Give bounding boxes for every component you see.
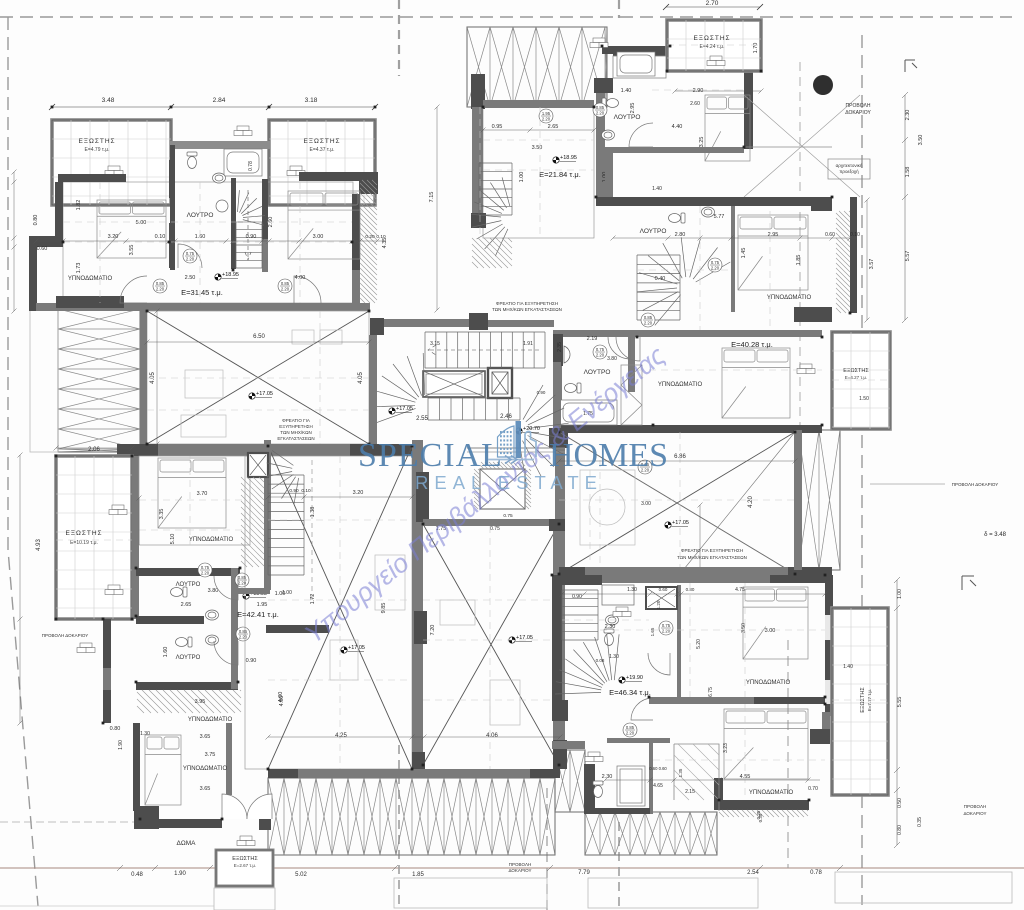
svg-text:0.80: 0.80 xyxy=(897,825,903,835)
svg-text:4.93: 4.93 xyxy=(36,539,42,551)
svg-text:0.85: 0.85 xyxy=(281,281,290,286)
svg-text:ΕΓΚΑΤΑΣΤΑΣΕΩΝ: ΕΓΚΑΤΑΣΤΑΣΕΩΝ xyxy=(277,436,314,441)
svg-text:Ε=10.19 τ.μ.: Ε=10.19 τ.μ. xyxy=(70,540,98,546)
svg-text:1.95: 1.95 xyxy=(257,602,268,608)
svg-text:3.20: 3.20 xyxy=(108,234,119,240)
svg-text:4.40: 4.40 xyxy=(672,124,683,130)
svg-text:ΠΡΟΒΟΛΗ ΔΟΚΑΡΙΟΥ: ΠΡΟΒΟΛΗ ΔΟΚΑΡΙΟΥ xyxy=(42,633,88,638)
svg-text:0.85: 0.85 xyxy=(644,315,653,320)
svg-text:0.85: 0.85 xyxy=(626,725,635,730)
svg-text:5.10: 5.10 xyxy=(170,534,176,545)
svg-text:2.15: 2.15 xyxy=(685,789,695,795)
svg-text:ΥΠΝΟΔΩΜΑΤΙΟ: ΥΠΝΟΔΩΜΑΤΙΟ xyxy=(767,295,812,301)
svg-text:Ε=4.27 τ.μ.: Ε=4.27 τ.μ. xyxy=(845,375,868,380)
svg-text:0.90: 0.90 xyxy=(246,234,257,240)
svg-text:2.20: 2.20 xyxy=(644,321,653,326)
svg-text:+17.05: +17.05 xyxy=(396,406,413,412)
svg-text:1.82: 1.82 xyxy=(76,200,82,211)
svg-text:0.80: 0.80 xyxy=(33,215,39,226)
svg-text:6.86: 6.86 xyxy=(674,454,686,460)
svg-text:2.20: 2.20 xyxy=(156,287,165,292)
svg-text:ΕΞΥΠΗΡΕΤΗΣΗ: ΕΞΥΠΗΡΕΤΗΣΗ xyxy=(279,424,312,429)
svg-text:1.91: 1.91 xyxy=(523,341,533,347)
svg-text:3.23: 3.23 xyxy=(723,743,729,753)
svg-text:ΛΟΥΤΡΟ: ΛΟΥΤΡΟ xyxy=(176,582,201,588)
svg-text:ΠΡΟΒΟΛΗ: ΠΡΟΒΟΛΗ xyxy=(846,103,871,109)
svg-text:ΦΡΕΑΤΙΟ ΓΙΑ ΕΞΥΠΗΡΕΤΗΣΗ: ΦΡΕΑΤΙΟ ΓΙΑ ΕΞΥΠΗΡΕΤΗΣΗ xyxy=(681,548,743,553)
svg-text:5.20: 5.20 xyxy=(696,639,702,649)
svg-text:0.10: 0.10 xyxy=(850,232,860,238)
svg-text:5.55: 5.55 xyxy=(897,697,903,708)
svg-text:1.40: 1.40 xyxy=(621,88,632,94)
svg-text:3.65: 3.65 xyxy=(200,786,211,792)
svg-text:4.75: 4.75 xyxy=(735,587,745,593)
svg-text:3.50: 3.50 xyxy=(918,135,924,146)
svg-text:ΥΠΝΟΔΩΜΑΤΙΟ: ΥΠΝΟΔΩΜΑΤΙΟ xyxy=(658,382,703,388)
svg-text:3.70: 3.70 xyxy=(197,491,208,497)
svg-text:0.75: 0.75 xyxy=(201,565,210,570)
svg-text:1.90: 1.90 xyxy=(118,740,124,750)
svg-text:0.85: 0.85 xyxy=(156,281,165,286)
svg-text:3.57: 3.57 xyxy=(869,259,875,270)
svg-text:0.48: 0.48 xyxy=(131,872,143,878)
svg-text:2.30: 2.30 xyxy=(605,624,616,630)
svg-text:0.08: 0.08 xyxy=(596,658,605,663)
svg-text:6.50: 6.50 xyxy=(253,334,265,340)
svg-text:ΥΠΝΟΔΩΜΑΤΙΟ: ΥΠΝΟΔΩΜΑΤΙΟ xyxy=(746,680,791,686)
svg-text:ΔΩΜΑ: ΔΩΜΑ xyxy=(177,840,197,847)
svg-text:0.90: 0.90 xyxy=(246,658,257,664)
svg-text:2.20: 2.20 xyxy=(596,111,605,116)
svg-text:2.80: 2.80 xyxy=(675,232,686,238)
svg-text:1.20: 1.20 xyxy=(656,600,661,609)
svg-text:2.95: 2.95 xyxy=(768,232,779,238)
svg-text:Ε=21.84 τ.μ.: Ε=21.84 τ.μ. xyxy=(539,170,581,179)
svg-text:ΔΟΚΑΡΙΟΥ: ΔΟΚΑΡΙΟΥ xyxy=(845,110,871,116)
svg-text:1.65: 1.65 xyxy=(650,627,655,636)
svg-text:3.00: 3.00 xyxy=(313,234,324,240)
svg-text:+18.95: +18.95 xyxy=(560,155,577,161)
svg-text:1.40: 1.40 xyxy=(652,186,662,192)
svg-text:5.00: 5.00 xyxy=(136,220,147,226)
svg-text:1.30: 1.30 xyxy=(140,731,150,737)
svg-text:+17.05: +17.05 xyxy=(256,391,273,397)
svg-text:ΕΞΩΣΤΗΣ: ΕΞΩΣΤΗΣ xyxy=(65,530,102,537)
svg-text:+19.90: +19.90 xyxy=(626,675,643,681)
svg-text:Ε=31.45 τ.μ.: Ε=31.45 τ.μ. xyxy=(181,288,223,297)
svg-text:3.75: 3.75 xyxy=(205,752,216,758)
svg-text:ΠΡΟΒΟΛΗ: ΠΡΟΒΟΛΗ xyxy=(964,804,986,809)
svg-text:4.05: 4.05 xyxy=(150,372,156,384)
svg-text:2.65: 2.65 xyxy=(181,602,192,608)
svg-text:0.90: 0.90 xyxy=(572,594,582,600)
svg-text:3.15: 3.15 xyxy=(430,341,440,347)
svg-text:+18.95: +18.95 xyxy=(222,272,239,278)
svg-text:0.60: 0.60 xyxy=(37,246,48,252)
svg-text:Ε=4.37 τ.μ.: Ε=4.37 τ.μ. xyxy=(309,147,334,153)
svg-text:2.30: 2.30 xyxy=(602,774,613,780)
svg-text:HOMES: HOMES xyxy=(549,437,668,474)
svg-text:0.70: 0.70 xyxy=(808,786,818,792)
svg-text:2.35: 2.35 xyxy=(557,342,563,352)
svg-text:ΔΟΚΑΡΙΟΥ: ΔΟΚΑΡΙΟΥ xyxy=(508,868,531,873)
svg-text:2.70: 2.70 xyxy=(706,0,719,7)
svg-text:5.02: 5.02 xyxy=(295,872,307,878)
svg-text:0.35: 0.35 xyxy=(758,813,763,822)
svg-text:0.95: 0.95 xyxy=(492,124,503,130)
svg-text:ΕΞΩΣΤΗΣ: ΕΞΩΣΤΗΣ xyxy=(843,368,869,374)
svg-text:ΦΡΕΑΤΙΟ ΓΙΑ: ΦΡΕΑΤΙΟ ΓΙΑ xyxy=(282,418,310,423)
svg-text:3.50: 3.50 xyxy=(741,623,747,633)
svg-text:1.50: 1.50 xyxy=(859,396,869,402)
svg-text:ΕΞΩΣΤΗΣ: ΕΞΩΣΤΗΣ xyxy=(303,138,340,145)
svg-text:0.40: 0.40 xyxy=(655,276,666,282)
svg-text:ΥΠΝΟΔΩΜΑΤΙΟ: ΥΠΝΟΔΩΜΑΤΙΟ xyxy=(68,276,113,282)
svg-text:0.75: 0.75 xyxy=(596,347,605,352)
svg-text:ΛΟΥΤΡΟ: ΛΟΥΤΡΟ xyxy=(187,212,214,219)
svg-text:Ε=42.41 τ.μ.: Ε=42.41 τ.μ. xyxy=(237,610,279,619)
svg-text:1.00: 1.00 xyxy=(519,172,525,183)
svg-text:ΥΠΝΟΔΩΜΑΤΙΟ: ΥΠΝΟΔΩΜΑΤΙΟ xyxy=(183,766,228,772)
svg-text:3.35: 3.35 xyxy=(159,509,165,520)
svg-text:0.90: 0.90 xyxy=(289,488,299,494)
svg-text:0.10: 0.10 xyxy=(376,234,386,240)
svg-text:1.72: 1.72 xyxy=(310,594,316,605)
svg-text:1.30: 1.30 xyxy=(609,654,619,660)
svg-text:0.35: 0.35 xyxy=(917,817,923,827)
svg-text:4.00: 4.00 xyxy=(278,692,284,703)
svg-text:2.20: 2.20 xyxy=(281,287,290,292)
svg-text:3.50: 3.50 xyxy=(532,145,543,151)
svg-text:Ε=2.67 τ.μ.: Ε=2.67 τ.μ. xyxy=(234,863,257,868)
svg-text:1.73: 1.73 xyxy=(76,263,82,274)
svg-text:4.65: 4.65 xyxy=(653,783,663,789)
svg-text:REAL ESTATE: REAL ESTATE xyxy=(415,472,603,493)
svg-text:0.75: 0.75 xyxy=(711,260,720,265)
svg-text:2.55: 2.55 xyxy=(416,416,428,422)
svg-text:1.38: 1.38 xyxy=(310,507,316,518)
svg-text:ΠΡΟΒΟΛΗ: ΠΡΟΒΟΛΗ xyxy=(509,862,531,867)
svg-text:2.54: 2.54 xyxy=(747,870,759,876)
svg-text:2.60: 2.60 xyxy=(690,101,700,107)
svg-text:0.90: 0.90 xyxy=(537,390,546,395)
svg-text:0.10: 0.10 xyxy=(155,234,166,240)
svg-text:0.85: 0.85 xyxy=(238,575,247,580)
svg-text:ΛΟΥΤΡΟ: ΛΟΥΤΡΟ xyxy=(584,369,611,376)
svg-text:ΥΠΝΟΔΩΜΑΤΙΟ: ΥΠΝΟΔΩΜΑΤΙΟ xyxy=(749,790,794,796)
svg-text:3.25: 3.25 xyxy=(699,137,705,148)
svg-text:αρχιτεκτονική: αρχιτεκτονική xyxy=(836,162,863,168)
svg-text:ΕΞΩΣΤΗΣ: ΕΞΩΣΤΗΣ xyxy=(860,687,866,713)
svg-text:2.20: 2.20 xyxy=(239,635,248,640)
svg-text:3.20: 3.20 xyxy=(353,490,364,496)
svg-text:Ε=4.79 τ.μ.: Ε=4.79 τ.μ. xyxy=(84,147,109,153)
svg-text:0.50: 0.50 xyxy=(897,798,903,808)
svg-text:0.75: 0.75 xyxy=(662,623,671,628)
svg-text:1.00: 1.00 xyxy=(282,590,292,596)
svg-text:1.90: 1.90 xyxy=(174,871,186,877)
svg-text:2.30: 2.30 xyxy=(905,110,911,121)
svg-text:Ε=46.34 τ.μ.: Ε=46.34 τ.μ. xyxy=(609,688,651,697)
svg-text:+20.70: +20.70 xyxy=(523,426,540,432)
svg-text:3.00: 3.00 xyxy=(765,628,776,634)
svg-text:5.77: 5.77 xyxy=(714,214,725,220)
svg-text:Ε=40.28 τ.μ.: Ε=40.28 τ.μ. xyxy=(731,340,773,349)
svg-text:5.57: 5.57 xyxy=(905,251,911,262)
svg-text:ΥΠΝΟΔΩΜΑΤΙΟ: ΥΠΝΟΔΩΜΑΤΙΟ xyxy=(189,537,234,543)
svg-text:2.95: 2.95 xyxy=(630,103,636,114)
svg-text:προεξοχή: προεξοχή xyxy=(839,168,859,174)
svg-text:0.75: 0.75 xyxy=(490,526,500,532)
svg-text:1.35: 1.35 xyxy=(678,768,683,777)
svg-text:3.95: 3.95 xyxy=(195,699,206,705)
svg-text:ΕΞΩΣΤΗΣ: ΕΞΩΣΤΗΣ xyxy=(78,138,115,145)
svg-text:3.55: 3.55 xyxy=(129,245,135,256)
svg-text:1.70: 1.70 xyxy=(753,43,759,54)
svg-text:3.65: 3.65 xyxy=(200,734,211,740)
svg-text:2.46: 2.46 xyxy=(500,414,512,420)
svg-text:ΕΞΩΣΤΗΣ: ΕΞΩΣΤΗΣ xyxy=(693,35,730,42)
svg-text:3.00: 3.00 xyxy=(641,501,651,507)
svg-text:δ = 3.48: δ = 3.48 xyxy=(984,532,1007,538)
svg-text:7.15: 7.15 xyxy=(429,192,435,203)
svg-text:1.95: 1.95 xyxy=(542,111,551,116)
svg-text:1.45: 1.45 xyxy=(741,248,747,259)
svg-text:ΠΡΟΒΟΛΗ ΔΟΚΑΡΙΟΥ: ΠΡΟΒΟΛΗ ΔΟΚΑΡΙΟΥ xyxy=(952,482,998,487)
svg-text:SPECIAL: SPECIAL xyxy=(358,437,503,474)
svg-text:3.80: 3.80 xyxy=(208,588,219,594)
svg-text:6.75: 6.75 xyxy=(708,687,714,697)
svg-text:4.05: 4.05 xyxy=(358,372,364,384)
svg-text:2.20: 2.20 xyxy=(238,581,247,586)
svg-text:0.80: 0.80 xyxy=(110,726,121,732)
svg-text:2.50: 2.50 xyxy=(185,275,196,281)
svg-text:0.10: 0.10 xyxy=(301,488,311,494)
svg-text:9.85: 9.85 xyxy=(381,603,387,614)
svg-text:+17.05: +17.05 xyxy=(672,520,689,526)
svg-text:3.48: 3.48 xyxy=(102,97,115,104)
svg-text:0.60: 0.60 xyxy=(825,232,835,238)
svg-text:2.20: 2.20 xyxy=(201,571,210,576)
svg-text:ΛΟΥΤΡΟ: ΛΟΥΤΡΟ xyxy=(614,114,641,121)
svg-text:0.85: 0.85 xyxy=(239,629,248,634)
svg-text:7.79: 7.79 xyxy=(578,870,590,876)
svg-text:ΤΩΝ ΜΗΧ/ΚΩΝ ΕΓΚΑΤΑΣΤΑΣΕΩΝ: ΤΩΝ ΜΗΧ/ΚΩΝ ΕΓΚΑΤΑΣΤΑΣΕΩΝ xyxy=(492,307,562,312)
svg-text:2.20: 2.20 xyxy=(542,117,551,122)
svg-text:0.60: 0.60 xyxy=(659,587,668,592)
svg-text:ΤΩΝ ΜΗΧ/ΚΩΝ: ΤΩΝ ΜΗΧ/ΚΩΝ xyxy=(280,430,311,435)
svg-text:1.00: 1.00 xyxy=(897,589,903,599)
svg-text:0.60 0.60: 0.60 0.60 xyxy=(649,766,667,771)
svg-text:2.65: 2.65 xyxy=(548,124,559,130)
svg-text:2.19: 2.19 xyxy=(587,336,598,342)
svg-text:2.20: 2.20 xyxy=(626,731,635,736)
svg-text:1.85: 1.85 xyxy=(796,255,802,266)
svg-text:2.84: 2.84 xyxy=(213,97,226,104)
svg-text:4.20: 4.20 xyxy=(748,496,754,508)
svg-text:0.78: 0.78 xyxy=(810,870,822,876)
svg-text:+17.05: +17.05 xyxy=(348,645,365,651)
svg-text:0.75: 0.75 xyxy=(503,513,513,519)
svg-text:0.75: 0.75 xyxy=(186,251,195,256)
svg-text:ΔΟΚΑΡΙΟΥ: ΔΟΚΑΡΙΟΥ xyxy=(963,811,986,816)
svg-text:ΛΟΥΤΡΟ: ΛΟΥΤΡΟ xyxy=(176,655,201,661)
svg-text:2.20: 2.20 xyxy=(186,257,195,262)
svg-text:4.25: 4.25 xyxy=(335,733,347,739)
svg-text:3.18: 3.18 xyxy=(305,97,318,104)
svg-text:ΤΩΝ ΜΗΧ/ΚΩΝ ΕΓΚΑΤΑΣΤΑΣΕΩΝ: ΤΩΝ ΜΗΧ/ΚΩΝ ΕΓΚΑΤΑΣΤΑΣΕΩΝ xyxy=(677,555,747,560)
svg-text:2.20: 2.20 xyxy=(662,629,671,634)
svg-text:7.20: 7.20 xyxy=(430,625,436,636)
svg-text:ΦΡΕΑΤΙΟ ΓΙΑ ΕΞΥΠΗΡΕΤΗΣΗ: ΦΡΕΑΤΙΟ ΓΙΑ ΕΞΥΠΗΡΕΤΗΣΗ xyxy=(496,301,558,306)
svg-text:ΛΟΥΤΡΟ: ΛΟΥΤΡΟ xyxy=(640,228,667,235)
svg-text:4.06: 4.06 xyxy=(486,733,498,739)
svg-text:1.85: 1.85 xyxy=(412,872,424,878)
svg-text:1.58: 1.58 xyxy=(905,167,911,178)
svg-text:0.85: 0.85 xyxy=(596,105,605,110)
svg-text:1.60: 1.60 xyxy=(163,647,169,658)
svg-text:3.80: 3.80 xyxy=(607,356,617,362)
svg-text:ΥΠΝΟΔΩΜΑΤΙΟ: ΥΠΝΟΔΩΜΑΤΙΟ xyxy=(188,717,233,723)
svg-text:0.78: 0.78 xyxy=(248,161,254,171)
svg-text:ΕΞΩΣΤΗΣ: ΕΞΩΣΤΗΣ xyxy=(232,856,258,862)
svg-text:0.20: 0.20 xyxy=(365,234,375,240)
svg-text:1.40: 1.40 xyxy=(843,664,853,670)
svg-text:1.30: 1.30 xyxy=(627,587,637,593)
svg-text:2.20: 2.20 xyxy=(596,353,605,358)
